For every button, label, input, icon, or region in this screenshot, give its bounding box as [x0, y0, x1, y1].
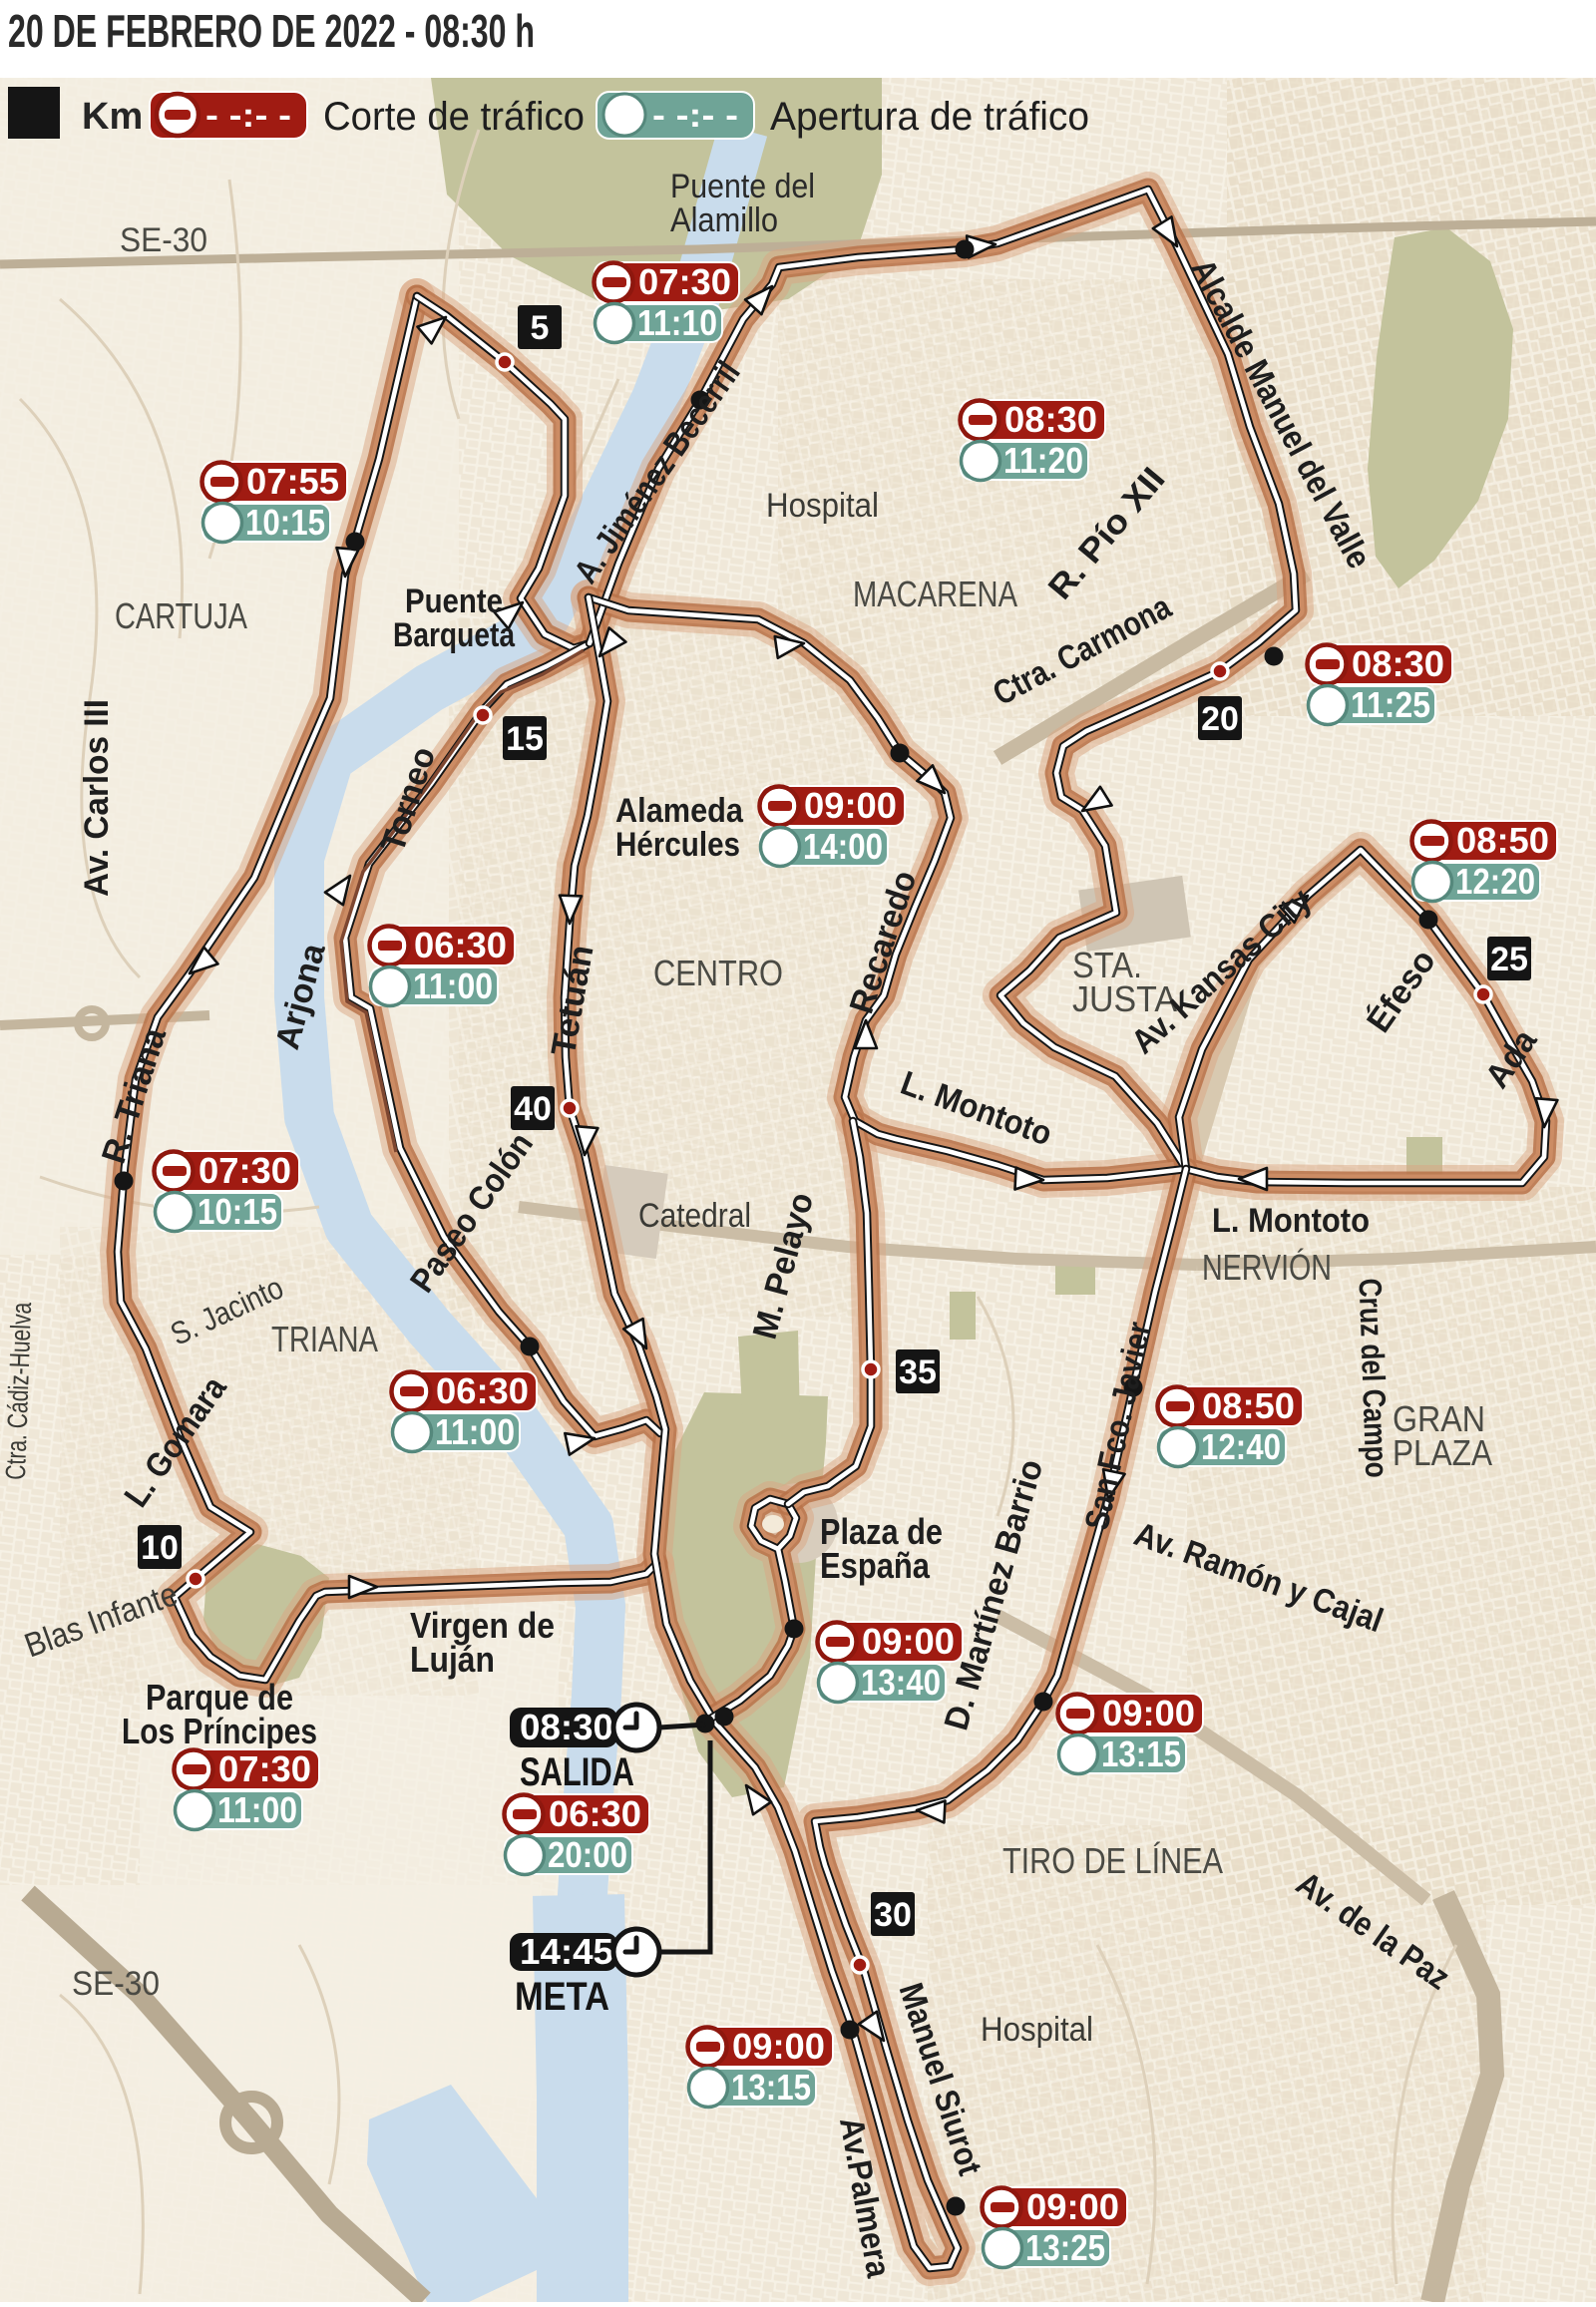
svg-text:08:30: 08:30 [520, 1707, 613, 1747]
svg-text:13:40: 13:40 [861, 1662, 941, 1703]
svg-text:España: España [820, 1545, 931, 1586]
svg-text:09:00: 09:00 [1102, 1693, 1195, 1733]
svg-text:Km: Km [82, 96, 143, 138]
svg-text:13:15: 13:15 [1101, 1733, 1181, 1774]
svg-text:10: 10 [141, 1529, 179, 1567]
svg-text:- -:- -: - -:- - [205, 97, 291, 135]
svg-text:Puente: Puente [405, 582, 503, 620]
svg-text:Ctra. Cádiz-Huelva: Ctra. Cádiz-Huelva [0, 1302, 37, 1480]
svg-text:30: 30 [874, 1896, 912, 1934]
svg-text:35: 35 [899, 1353, 937, 1391]
svg-text:NERVIÓN: NERVIÓN [1202, 1247, 1332, 1288]
svg-text:SE-30: SE-30 [120, 221, 207, 259]
svg-text:META: META [515, 1975, 609, 2019]
svg-text:Los Príncipes: Los Príncipes [122, 1711, 317, 1751]
svg-text:11:00: 11:00 [435, 1411, 515, 1452]
svg-text:08:50: 08:50 [1456, 820, 1549, 861]
svg-text:13:15: 13:15 [731, 2067, 811, 2108]
svg-text:Av. Carlos III: Av. Carlos III [78, 699, 116, 897]
svg-text:11:00: 11:00 [413, 965, 493, 1006]
svg-text:Alamillo: Alamillo [670, 201, 778, 239]
svg-text:08:30: 08:30 [1004, 399, 1097, 440]
svg-text:Hospital: Hospital [766, 487, 879, 525]
svg-text:Hércules: Hércules [615, 826, 740, 864]
svg-text:TRIANA: TRIANA [271, 1319, 378, 1359]
svg-text:- -:- -: - -:- - [652, 97, 738, 135]
svg-text:MACARENA: MACARENA [853, 574, 1017, 614]
svg-text:Alameda: Alameda [615, 792, 744, 830]
svg-text:11:20: 11:20 [1003, 440, 1083, 481]
svg-text:14:45: 14:45 [520, 1931, 613, 1972]
svg-text:20 DE FEBRERO DE 2022 - 08:30: 20 DE FEBRERO DE 2022 - 08:30 h [8, 5, 535, 57]
svg-text:09:00: 09:00 [804, 785, 897, 826]
svg-text:12:40: 12:40 [1201, 1426, 1281, 1467]
svg-text:08:50: 08:50 [1202, 1385, 1295, 1426]
svg-text:06:30: 06:30 [436, 1370, 529, 1411]
svg-text:25: 25 [1490, 941, 1528, 978]
svg-text:07:30: 07:30 [199, 1150, 291, 1191]
svg-text:TIRO DE LÍNEA: TIRO DE LÍNEA [1002, 1840, 1223, 1881]
svg-text:Puente del: Puente del [670, 168, 815, 205]
svg-text:Hospital: Hospital [981, 2011, 1093, 2049]
svg-text:CENTRO: CENTRO [653, 953, 783, 993]
svg-text:09:00: 09:00 [862, 1621, 955, 1662]
svg-text:11:25: 11:25 [1351, 684, 1430, 725]
svg-text:07:30: 07:30 [638, 261, 731, 302]
svg-text:07:55: 07:55 [246, 461, 339, 502]
svg-text:L. Montoto: L. Montoto [1212, 1202, 1370, 1240]
svg-text:Apertura de tráfico: Apertura de tráfico [770, 95, 1089, 139]
svg-text:5: 5 [531, 309, 550, 347]
svg-text:09:00: 09:00 [732, 2026, 825, 2067]
svg-text:07:30: 07:30 [218, 1748, 311, 1789]
svg-text:20:00: 20:00 [548, 1834, 627, 1875]
svg-text:13:25: 13:25 [1025, 2227, 1105, 2268]
svg-text:06:30: 06:30 [414, 925, 507, 965]
svg-text:Barqueta: Barqueta [393, 616, 516, 654]
svg-text:Luján: Luján [410, 1639, 495, 1680]
svg-text:20: 20 [1201, 700, 1239, 738]
svg-text:40: 40 [514, 1090, 552, 1128]
svg-text:SE-30: SE-30 [72, 1965, 160, 2003]
svg-text:PLAZA: PLAZA [1393, 1432, 1492, 1473]
svg-text:11:00: 11:00 [217, 1789, 297, 1830]
svg-text:08:30: 08:30 [1352, 643, 1444, 684]
svg-text:06:30: 06:30 [549, 1793, 641, 1834]
svg-text:12:20: 12:20 [1455, 861, 1535, 902]
svg-text:10:15: 10:15 [245, 502, 325, 543]
svg-text:Catedral: Catedral [638, 1197, 751, 1235]
svg-text:10:15: 10:15 [198, 1191, 277, 1232]
svg-text:11:10: 11:10 [637, 302, 717, 343]
svg-text:CARTUJA: CARTUJA [115, 595, 247, 636]
svg-text:Cruz del Campo: Cruz del Campo [1353, 1278, 1396, 1478]
svg-text:SALIDA: SALIDA [520, 1750, 634, 1794]
svg-text:14:00: 14:00 [803, 826, 883, 867]
svg-text:Corte de tráfico: Corte de tráfico [323, 95, 585, 139]
svg-text:15: 15 [506, 720, 544, 758]
svg-text:09:00: 09:00 [1026, 2186, 1119, 2227]
